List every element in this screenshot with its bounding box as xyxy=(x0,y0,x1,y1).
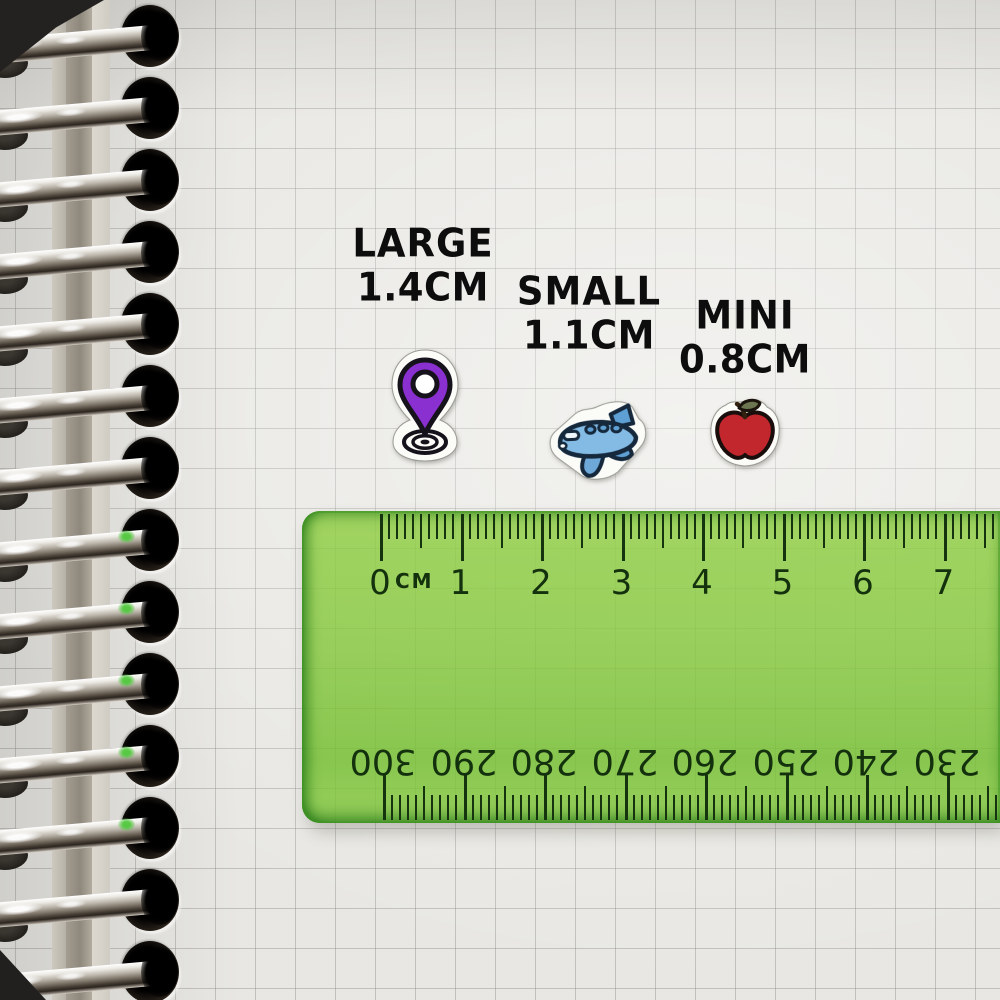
binding-coil-row xyxy=(0,220,200,284)
binding-hole-shadow xyxy=(141,299,178,349)
ruler-tick xyxy=(955,795,957,820)
ruler-tick xyxy=(839,514,841,539)
ruler-tick xyxy=(455,795,457,820)
ruler-tick xyxy=(971,795,973,820)
ruler-tick xyxy=(552,795,554,820)
ruler-tick xyxy=(952,514,954,539)
ruler-tick xyxy=(665,786,667,820)
ruler-tick xyxy=(533,514,535,539)
ruler-tick xyxy=(485,514,487,539)
binding-coil-row xyxy=(0,580,200,644)
ruler-tick xyxy=(890,795,892,820)
ruler-number: 260 xyxy=(672,741,739,781)
ruler-tick xyxy=(914,795,916,820)
ruler-tick xyxy=(404,514,406,539)
ruler-tick xyxy=(774,514,776,539)
ruler-tick xyxy=(944,514,947,561)
ruler-tick xyxy=(850,795,852,820)
ruler-tick xyxy=(984,514,986,548)
ruler-tick xyxy=(783,514,786,561)
ruler-tick xyxy=(681,795,683,820)
photo-stage: LARGE 1.4CM SMALL 1.1CM MINI 0.8CM xyxy=(0,0,1000,1000)
ruler-number: 300 xyxy=(350,741,417,781)
ruler-tick xyxy=(710,514,712,539)
ruler-tick xyxy=(976,514,978,539)
ruler-tick xyxy=(654,514,656,539)
ruler-tick xyxy=(818,795,820,820)
binding-hole-shadow xyxy=(141,227,178,277)
ruler-tick xyxy=(979,795,981,820)
ruler-tick xyxy=(794,795,796,820)
ruler-tick xyxy=(517,514,519,539)
ruler-tick xyxy=(568,795,570,820)
ruler-tick xyxy=(911,514,913,539)
ruler-tick xyxy=(879,514,881,539)
ruler-tick xyxy=(922,795,924,820)
ruler-tick xyxy=(544,775,547,820)
ruler-tick xyxy=(927,514,929,539)
binding-hole-shadow xyxy=(141,947,178,997)
ruler-tick xyxy=(622,514,625,561)
ruler-number: 2 xyxy=(530,563,552,603)
ruler-tick xyxy=(799,514,801,539)
ruler-tick xyxy=(525,514,527,539)
ruler-tick xyxy=(641,795,643,820)
ruler-tick xyxy=(815,514,817,539)
ruler-tick xyxy=(436,514,438,539)
coil-green-reflection xyxy=(118,746,135,759)
ruler-tick xyxy=(874,795,876,820)
ruler-tick xyxy=(670,514,672,539)
ruler-tick xyxy=(721,795,723,820)
ruler-tick xyxy=(753,795,755,820)
ruler-number: 230 xyxy=(913,741,980,781)
binding-coil-row xyxy=(0,364,200,428)
ruler-tick xyxy=(412,514,414,539)
binding-coil-row xyxy=(0,148,200,212)
ruler-tick xyxy=(689,795,691,820)
ruler: 01234567 CM 300290280270260250240230 xyxy=(302,511,1000,823)
ruler-tick xyxy=(573,514,575,539)
ruler-tick xyxy=(541,514,544,561)
ruler-tick xyxy=(831,514,833,539)
ruler-tick xyxy=(769,795,771,820)
ruler-tick xyxy=(616,795,618,820)
ruler-tick xyxy=(520,795,522,820)
ruler-tick xyxy=(605,514,607,539)
ruler-tick xyxy=(855,514,857,539)
binding-hole-shadow xyxy=(141,11,178,61)
ruler-tick xyxy=(673,795,675,820)
ruler-tick xyxy=(431,795,433,820)
coil-green-reflection xyxy=(118,530,135,543)
spiral-binding xyxy=(0,0,200,1000)
ruler-tick xyxy=(383,775,386,820)
ruler-tick xyxy=(477,514,479,539)
ruler-tick xyxy=(960,514,962,539)
ruler-tick xyxy=(702,514,705,561)
ruler-tick xyxy=(380,514,383,561)
ruler-number: 250 xyxy=(752,741,819,781)
ruler-tick xyxy=(396,514,398,539)
ruler-tick xyxy=(439,795,441,820)
ruler-tick xyxy=(480,795,482,820)
ruler-tick xyxy=(592,795,594,820)
apple-sticker-icon xyxy=(706,396,784,470)
ruler-tick xyxy=(777,795,779,820)
ruler-tick xyxy=(388,514,390,539)
ruler-tick xyxy=(742,514,744,548)
ruler-tick xyxy=(649,795,651,820)
location-pin-sticker-icon xyxy=(384,347,466,463)
ruler-tick xyxy=(461,514,464,561)
ruler-tick xyxy=(895,514,897,539)
ruler-tick xyxy=(549,514,551,539)
ruler-tick xyxy=(737,795,739,820)
ruler-tick xyxy=(613,514,615,539)
ruler-tick xyxy=(678,514,680,539)
ruler-number: 0 xyxy=(369,563,391,603)
size-label-mini-title: MINI xyxy=(650,294,840,338)
ruler-tick xyxy=(597,514,599,539)
binding-coil-row xyxy=(0,868,200,932)
ruler-number: 280 xyxy=(511,741,578,781)
ruler-tick xyxy=(469,514,471,539)
ruler-tick xyxy=(509,514,511,539)
ruler-tick xyxy=(625,775,628,820)
coil-green-reflection xyxy=(118,674,135,687)
ruler-tick xyxy=(903,514,905,548)
ruler-tick xyxy=(995,795,997,820)
ruler-tick xyxy=(423,786,425,820)
binding-hole-shadow xyxy=(141,83,178,133)
ruler-tick xyxy=(581,514,583,548)
ruler-tick xyxy=(866,775,869,820)
ruler-tick xyxy=(898,795,900,820)
ruler-tick xyxy=(761,795,763,820)
ruler-tick xyxy=(501,514,503,548)
ruler-tick xyxy=(987,786,989,820)
ruler-tick xyxy=(512,795,514,820)
ruler-tick xyxy=(718,514,720,539)
ruler-tick xyxy=(842,795,844,820)
ruler-tick xyxy=(947,775,950,820)
ruler-tick xyxy=(935,514,937,539)
ruler-tick xyxy=(968,514,970,539)
ruler-tick xyxy=(887,514,889,539)
ruler-tick xyxy=(766,514,768,539)
ruler-tick xyxy=(863,514,866,561)
ruler-tick xyxy=(906,786,908,820)
ruler-tick xyxy=(745,786,747,820)
ruler-tick xyxy=(557,514,559,539)
binding-hole-shadow xyxy=(141,371,178,421)
ruler-tick xyxy=(963,795,965,820)
ruler-tick xyxy=(802,795,804,820)
ruler-tick xyxy=(871,514,873,539)
ruler-tick xyxy=(734,514,736,539)
binding-hole-shadow xyxy=(141,731,178,781)
ruler-tick xyxy=(726,514,728,539)
ruler-tick xyxy=(428,514,430,539)
ruler-tick xyxy=(834,795,836,820)
binding-coil-row xyxy=(0,76,200,140)
ruler-tick xyxy=(496,795,498,820)
ruler-tick xyxy=(630,514,632,539)
ruler-tick xyxy=(600,795,602,820)
ruler-tick xyxy=(391,795,393,820)
ruler-tick xyxy=(444,514,446,539)
ruler-tick xyxy=(694,514,696,539)
ruler-tick xyxy=(729,795,731,820)
ruler-tick xyxy=(847,514,849,539)
size-label-large: LARGE 1.4CM xyxy=(328,222,518,310)
ruler-tick xyxy=(415,795,417,820)
binding-hole-shadow xyxy=(141,155,178,205)
ruler-tick xyxy=(472,795,474,820)
binding-coil-row xyxy=(0,508,200,572)
ruler-tick xyxy=(807,514,809,539)
ruler-tick xyxy=(750,514,752,539)
ruler-number: 5 xyxy=(772,563,794,603)
size-label-mini-value: 0.8CM xyxy=(650,338,840,382)
ruler-tick xyxy=(407,795,409,820)
ruler-tick xyxy=(686,514,688,539)
ruler-number: 6 xyxy=(852,563,874,603)
binding-hole-shadow xyxy=(141,515,178,565)
ruler-tick xyxy=(938,795,940,820)
ruler-tick xyxy=(493,514,495,539)
binding-hole-shadow xyxy=(141,803,178,853)
binding-coil-row xyxy=(0,436,200,500)
ruler-tick xyxy=(930,795,932,820)
ruler-tick xyxy=(697,795,699,820)
ruler-tick xyxy=(646,514,648,539)
ruler-tick xyxy=(608,795,610,820)
ruler-tick xyxy=(464,775,467,820)
ruler-tick xyxy=(713,795,715,820)
ruler-tick xyxy=(447,795,449,820)
binding-hole-shadow xyxy=(141,659,178,709)
ruler-tick xyxy=(633,795,635,820)
size-label-mini: MINI 0.8CM xyxy=(650,294,840,382)
ruler-tick xyxy=(565,514,567,539)
ruler-number: 4 xyxy=(691,563,713,603)
ruler-tick xyxy=(584,786,586,820)
ruler-tick xyxy=(662,514,664,548)
ruler-number: 240 xyxy=(833,741,900,781)
ruler-tick xyxy=(528,795,530,820)
ruler-tick xyxy=(786,775,789,820)
ruler-tick xyxy=(420,514,422,548)
airplane-sticker-icon xyxy=(544,396,656,484)
ruler-tick xyxy=(882,795,884,820)
ruler-tick xyxy=(791,514,793,539)
ruler-tick xyxy=(399,795,401,820)
ruler-tick xyxy=(560,795,562,820)
binding-coil-row xyxy=(0,724,200,788)
ruler-tick xyxy=(992,514,994,539)
binding-hole-shadow xyxy=(141,443,178,493)
size-label-large-title: LARGE xyxy=(328,222,518,266)
ruler-tick xyxy=(638,514,640,539)
ruler-tick xyxy=(919,514,921,539)
ruler-tick xyxy=(823,514,825,548)
ruler-unit-label: CM xyxy=(395,569,434,593)
binding-hole-shadow xyxy=(141,587,178,637)
coil-green-reflection xyxy=(118,602,135,615)
binding-coil-row xyxy=(0,652,200,716)
ruler-number: 270 xyxy=(591,741,658,781)
ruler-tick xyxy=(504,786,506,820)
ruler-number: 7 xyxy=(933,563,955,603)
binding-hole-shadow xyxy=(141,875,178,925)
binding-coil-row xyxy=(0,292,200,356)
ruler-tick xyxy=(452,514,454,539)
ruler-tick xyxy=(705,775,708,820)
ruler-tick xyxy=(758,514,760,539)
ruler-number: 290 xyxy=(430,741,497,781)
ruler-number: 3 xyxy=(611,563,633,603)
ruler-tick xyxy=(810,795,812,820)
binding-coil-row xyxy=(0,796,200,860)
ruler-tick xyxy=(536,795,538,820)
coil-green-reflection xyxy=(118,818,135,831)
ruler-tick xyxy=(576,795,578,820)
ruler-tick xyxy=(657,795,659,820)
ruler-tick xyxy=(826,786,828,820)
ruler-number: 1 xyxy=(450,563,472,603)
ruler-tick xyxy=(858,795,860,820)
ruler-tick xyxy=(589,514,591,539)
size-label-large-value: 1.4CM xyxy=(328,266,518,310)
ruler-tick xyxy=(488,795,490,820)
